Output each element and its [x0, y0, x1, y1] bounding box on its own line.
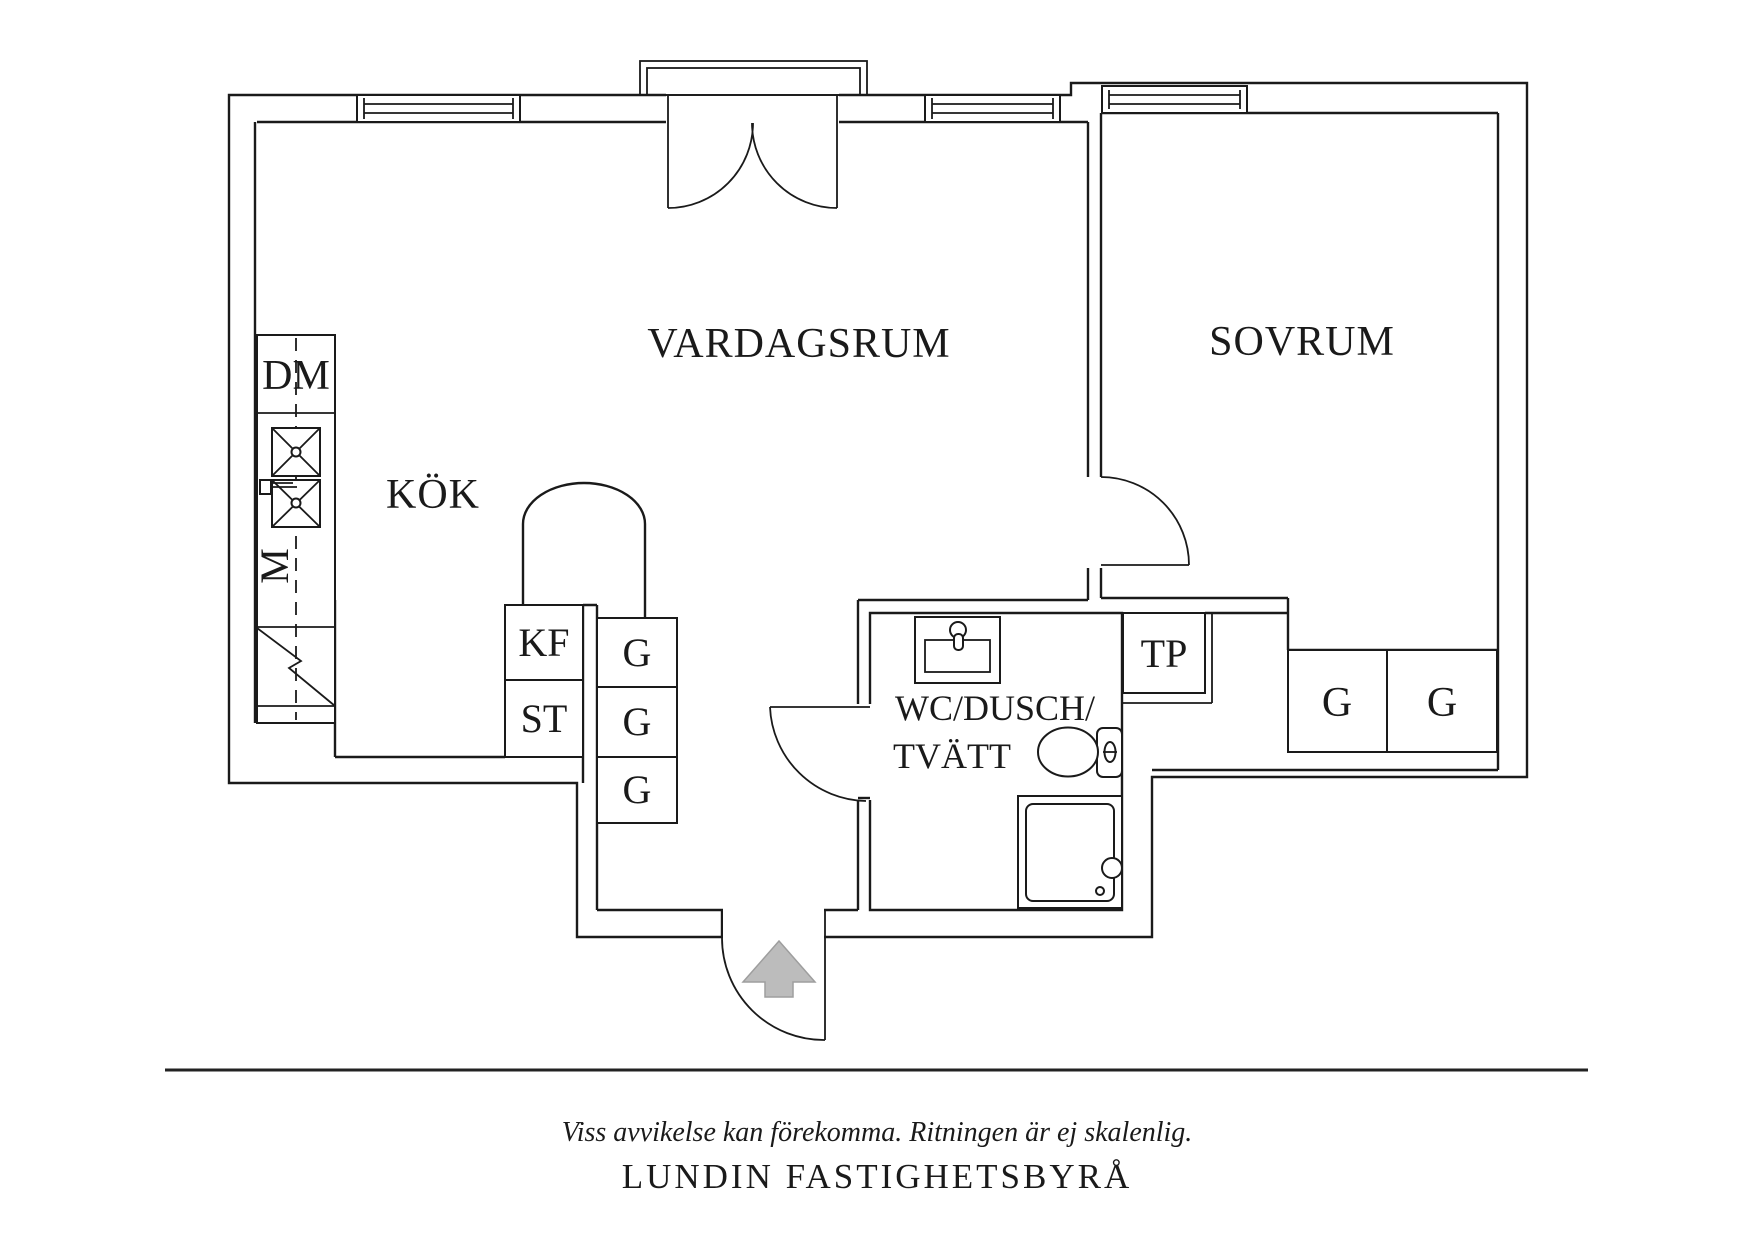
- agency-name: LUNDIN FASTIGHETSBYRÅ: [622, 1157, 1133, 1196]
- window-living-right: [925, 95, 1060, 122]
- microwave-label: M: [252, 548, 297, 584]
- wardrobe-label-2: G: [623, 699, 652, 744]
- toilet-icon: [1038, 728, 1122, 778]
- footer: Viss avvikelse kan förekomma. Ritningen …: [165, 1070, 1588, 1196]
- living-room-label: VARDAGSRUM: [647, 321, 950, 367]
- kitchen-arch: [523, 483, 645, 618]
- bathroom-label-2: TVÄTT: [893, 736, 1011, 776]
- entrance-arrow-icon: [743, 941, 815, 997]
- window-bedroom: [1102, 86, 1247, 113]
- wardrobe-label-3: G: [623, 767, 652, 812]
- floorplan-canvas: VARDAGSRUM SOVRUM KÖK WC/DUSCH/ TVÄTT DM…: [0, 0, 1754, 1240]
- fridge-freezer-label: KF: [518, 620, 569, 665]
- bathroom-sink-icon: [915, 617, 1000, 683]
- floorplan-page: VARDAGSRUM SOVRUM KÖK WC/DUSCH/ TVÄTT DM…: [0, 0, 1754, 1240]
- fixture-labels: DM M KF ST G G G TP G G: [252, 353, 1457, 812]
- wardrobe-label-1: G: [623, 630, 652, 675]
- wardrobe-label-5: G: [1427, 680, 1457, 726]
- tp-cabinet-label: TP: [1141, 631, 1188, 676]
- disclaimer-text: Viss avvikelse kan förekomma. Ritningen …: [562, 1117, 1193, 1148]
- bedroom-label: SOVRUM: [1209, 319, 1395, 365]
- balcony-outline: [640, 61, 867, 95]
- shower-icon: [1018, 796, 1122, 908]
- dishwasher-label: DM: [262, 353, 330, 399]
- wardrobe-label-4: G: [1322, 680, 1352, 726]
- kitchen-label: KÖK: [386, 472, 480, 518]
- bathroom-label-1: WC/DUSCH/: [895, 688, 1095, 728]
- bedroom-door: [1101, 477, 1189, 565]
- pantry-label: ST: [521, 696, 568, 741]
- window-living-left: [357, 95, 520, 122]
